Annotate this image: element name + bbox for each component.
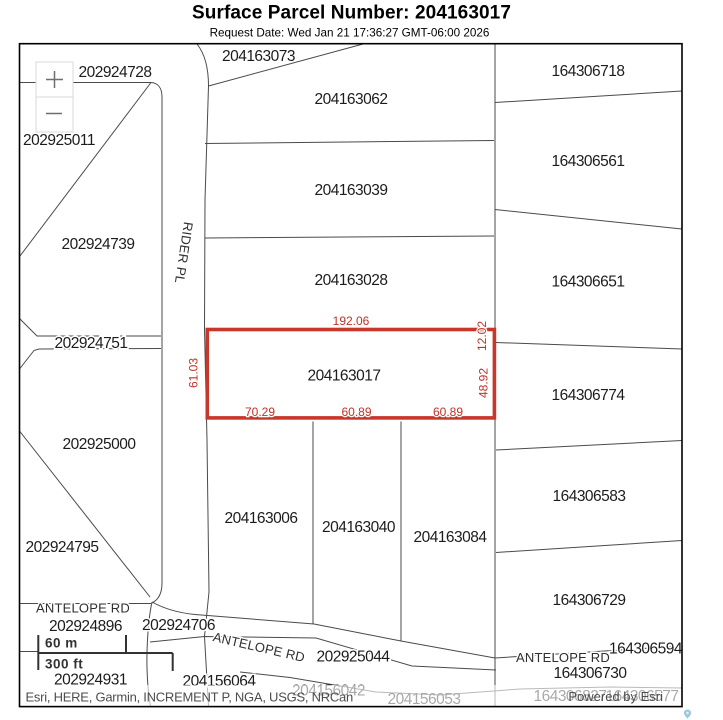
svg-text:204163073: 204163073: [222, 48, 295, 65]
svg-text:12.02: 12.02: [475, 321, 489, 351]
svg-text:202924739: 202924739: [61, 236, 134, 253]
svg-text:60 m: 60 m: [45, 636, 78, 651]
svg-text:48.92: 48.92: [477, 368, 491, 398]
svg-text:164306730: 164306730: [553, 665, 627, 682]
svg-text:192.06: 192.06: [333, 314, 370, 328]
svg-text:60.89: 60.89: [433, 405, 463, 419]
svg-text:Powered by Esri: Powered by Esri: [568, 689, 663, 704]
svg-text:164306594: 164306594: [609, 641, 683, 658]
svg-text:164306561: 164306561: [551, 153, 624, 170]
svg-text:204163040: 204163040: [322, 519, 396, 536]
svg-text:204163028: 204163028: [314, 272, 387, 289]
svg-text:204163039: 204163039: [314, 182, 387, 199]
svg-text:202924751: 202924751: [54, 335, 127, 352]
svg-text:202924896: 202924896: [49, 618, 122, 635]
svg-text:ANTELOPE RD: ANTELOPE RD: [516, 650, 610, 665]
svg-text:ANTELOPE RD: ANTELOPE RD: [36, 601, 130, 616]
svg-text:70.29: 70.29: [245, 405, 275, 419]
svg-text:204163084: 204163084: [413, 529, 487, 546]
svg-text:202924728: 202924728: [78, 64, 151, 81]
svg-text:Surface Parcel Number: 2041630: Surface Parcel Number: 204163017: [192, 2, 511, 23]
svg-text:164306583: 164306583: [552, 488, 625, 505]
svg-text:204163017: 204163017: [307, 368, 380, 385]
svg-text:204163062: 204163062: [314, 91, 387, 108]
svg-text:202925011: 202925011: [23, 132, 95, 149]
svg-text:202924706: 202924706: [142, 617, 215, 634]
svg-text:202924795: 202924795: [25, 539, 98, 556]
svg-text:164306651: 164306651: [551, 274, 624, 291]
svg-text:300 ft: 300 ft: [45, 657, 83, 672]
svg-text:Request Date: Wed Jan 21 17:36: Request Date: Wed Jan 21 17:36:27 GMT-06…: [210, 27, 490, 40]
svg-text:Esri, HERE, Garmin, INCREMENT: Esri, HERE, Garmin, INCREMENT P, NGA, US…: [26, 689, 354, 704]
svg-text:61.03: 61.03: [187, 358, 201, 388]
svg-text:164306718: 164306718: [551, 63, 624, 80]
svg-text:164306729: 164306729: [552, 592, 625, 609]
svg-text:60.89: 60.89: [341, 405, 371, 419]
svg-text:202925044: 202925044: [316, 649, 390, 666]
svg-text:204163006: 204163006: [224, 510, 297, 527]
svg-text:164306774: 164306774: [551, 387, 625, 404]
svg-text:202925000: 202925000: [62, 436, 136, 453]
